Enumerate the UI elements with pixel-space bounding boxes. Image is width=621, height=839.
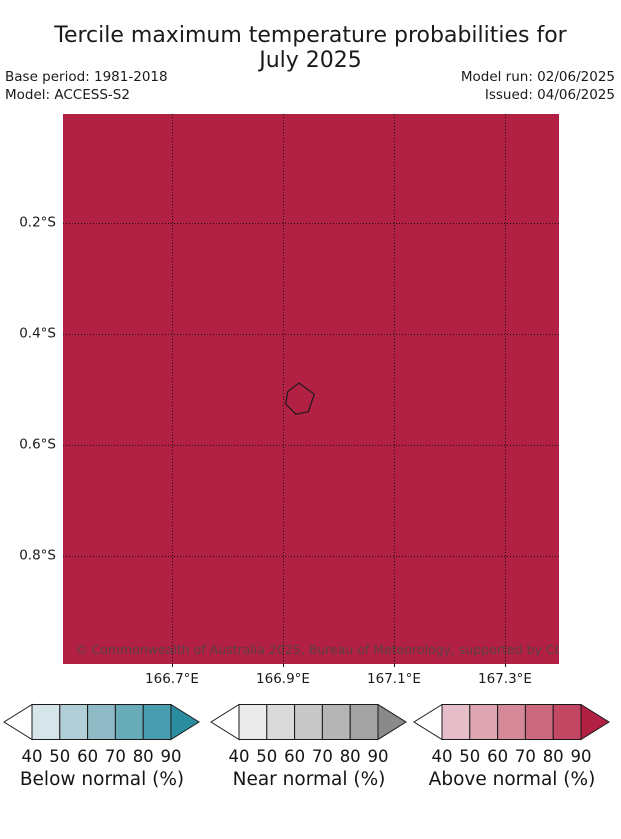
colorbar-tick-label: 90 bbox=[368, 748, 389, 766]
colorbar-tick-label: 80 bbox=[340, 748, 361, 766]
attribution-text: © Commonwealth of Australia 2025, Bureau… bbox=[75, 642, 559, 657]
colorbar-tick-label: 50 bbox=[256, 748, 277, 766]
gridline-vertical bbox=[394, 114, 395, 664]
colorbar-segment bbox=[553, 705, 581, 740]
colorbar-tick-label: 90 bbox=[571, 748, 592, 766]
model-text: Model: ACCESS-S2 bbox=[5, 86, 168, 104]
x-axis-tick-mark bbox=[394, 664, 395, 667]
gridline-horizontal bbox=[63, 445, 559, 446]
colorbar-tick-label: 40 bbox=[22, 748, 43, 766]
map-canvas: © Commonwealth of Australia 2025, Bureau… bbox=[63, 114, 559, 664]
colorbar-segment bbox=[498, 705, 526, 740]
colorbar-above-normal: 405060708090Above normal (%) bbox=[412, 703, 612, 795]
colorbar-title: Above normal (%) bbox=[412, 769, 612, 791]
colorbar-swatches bbox=[412, 703, 612, 742]
base-period-text: Base period: 1981-2018 bbox=[5, 68, 168, 86]
colorbar-tick-label: 70 bbox=[515, 748, 536, 766]
colorbar-tick-label: 40 bbox=[432, 748, 453, 766]
y-axis-tick-label: 0.6°S bbox=[0, 438, 56, 453]
colorbar-right-arrow-icon bbox=[171, 705, 199, 740]
colorbar-left-arrow-icon bbox=[211, 705, 239, 740]
gridline-vertical bbox=[505, 114, 506, 664]
x-axis-tick-label: 167.3°E bbox=[478, 672, 532, 687]
colorbar-segment bbox=[239, 705, 267, 740]
colorbar-left-arrow-icon bbox=[414, 705, 442, 740]
colorbar-title: Near normal (%) bbox=[209, 769, 409, 791]
colorbar-tick-label: 60 bbox=[487, 748, 508, 766]
colorbar-segment bbox=[115, 705, 143, 740]
colorbar-segment bbox=[32, 705, 60, 740]
gridline-vertical bbox=[283, 114, 284, 664]
colorbar-swatches bbox=[2, 703, 202, 742]
colorbar-left-arrow-icon bbox=[4, 705, 32, 740]
colorbar-segment bbox=[442, 705, 470, 740]
colorbar-tick-label: 60 bbox=[77, 748, 98, 766]
colorbar-tick-label: 70 bbox=[105, 748, 126, 766]
colorbar-tick-label: 50 bbox=[49, 748, 70, 766]
colorbar-right-arrow-icon bbox=[378, 705, 406, 740]
colorbar-title: Below normal (%) bbox=[2, 769, 202, 791]
colorbar-tick-label: 70 bbox=[312, 748, 333, 766]
colorbar-segment bbox=[350, 705, 378, 740]
header-left: Base period: 1981-2018 Model: ACCESS-S2 bbox=[5, 68, 168, 104]
colorbar-segment bbox=[267, 705, 295, 740]
colorbar-swatches bbox=[209, 703, 409, 742]
gridline-horizontal bbox=[63, 556, 559, 557]
colorbar-segment bbox=[525, 705, 553, 740]
colorbar-tick-label: 90 bbox=[161, 748, 182, 766]
colorbar-tick-label: 80 bbox=[133, 748, 154, 766]
header-right: Model run: 02/06/2025 Issued: 04/06/2025 bbox=[461, 68, 615, 104]
colorbar-tick-label: 80 bbox=[543, 748, 564, 766]
colorbar-segment bbox=[295, 705, 323, 740]
x-axis-tick-label: 166.9°E bbox=[256, 672, 310, 687]
colorbar-tick-label: 50 bbox=[459, 748, 480, 766]
nauru-coastline-icon bbox=[281, 378, 321, 418]
issued-text: Issued: 04/06/2025 bbox=[461, 86, 615, 104]
colorbar-below-normal: 405060708090Below normal (%) bbox=[2, 703, 202, 795]
colorbar-right-arrow-icon bbox=[581, 705, 609, 740]
x-axis-tick-label: 167.1°E bbox=[367, 672, 421, 687]
colorbar-near-normal: 405060708090Near normal (%) bbox=[209, 703, 409, 795]
colorbar-tick-label: 40 bbox=[229, 748, 250, 766]
page-title: Tercile maximum temperature probabilitie… bbox=[0, 23, 621, 73]
title-line-1: Tercile maximum temperature probabilitie… bbox=[0, 23, 621, 48]
x-axis-tick-label: 166.7°E bbox=[145, 672, 199, 687]
y-axis-tick-label: 0.2°S bbox=[0, 216, 56, 231]
x-axis-tick-mark bbox=[283, 664, 284, 667]
y-axis-tick-label: 0.4°S bbox=[0, 327, 56, 342]
gridline-vertical bbox=[172, 114, 173, 664]
x-axis-tick-mark bbox=[172, 664, 173, 667]
colorbar-segment bbox=[143, 705, 171, 740]
x-axis-tick-mark bbox=[505, 664, 506, 667]
model-run-text: Model run: 02/06/2025 bbox=[461, 68, 615, 86]
y-axis-tick-label: 0.8°S bbox=[0, 549, 56, 564]
colorbar-segment bbox=[322, 705, 350, 740]
colorbar-segment bbox=[88, 705, 116, 740]
colorbar-segment bbox=[60, 705, 88, 740]
colorbar-segment bbox=[470, 705, 498, 740]
figure: Tercile maximum temperature probabilitie… bbox=[0, 0, 621, 839]
gridline-horizontal bbox=[63, 223, 559, 224]
gridline-horizontal bbox=[63, 334, 559, 335]
colorbar-tick-label: 60 bbox=[284, 748, 305, 766]
